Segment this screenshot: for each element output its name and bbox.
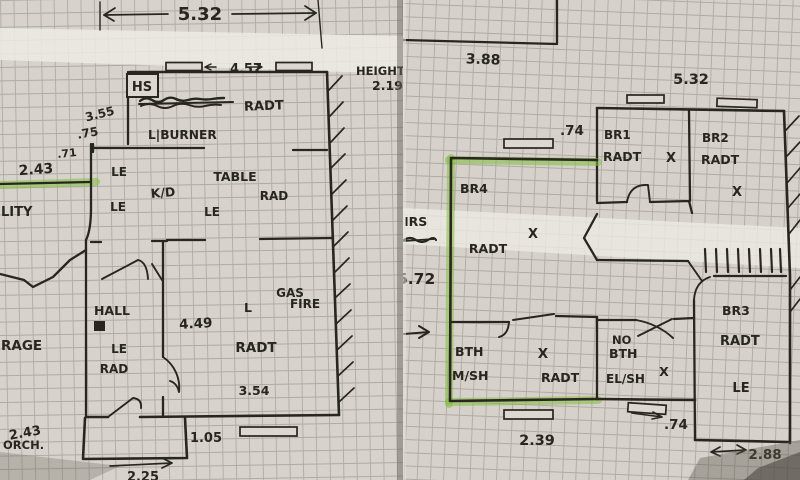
kd-label: K/D <box>150 184 176 201</box>
floor-plan-drawing: 5.32 4.57 HEIGHT 2.19 HS RADT 3.55 .75 L… <box>0 0 800 480</box>
hall-label: HALL <box>94 303 130 318</box>
br4-label: BR4 <box>460 181 488 196</box>
dim-0-74-bottom-label: .74 <box>664 417 688 433</box>
kitchen-radiator-label: RADT <box>244 98 284 114</box>
br3-label: BR3 <box>722 303 750 318</box>
br1-radiator-label: RADT <box>603 149 642 164</box>
le-left-label: LE <box>110 200 126 214</box>
table-label: TABLE <box>213 169 256 184</box>
bath-x-mark: X <box>538 346 549 362</box>
dim-2-25-label: 2.25 <box>127 470 159 480</box>
no-bath-x-mark: X <box>659 364 669 379</box>
bath-shower-label: M/SH <box>452 368 488 383</box>
br1-label: BR1 <box>604 128 631 142</box>
dim-5-32-label: 5.32 <box>178 4 222 25</box>
window-symbol <box>627 95 664 103</box>
stairs-label: IRS <box>404 214 427 229</box>
window-symbol <box>240 427 297 436</box>
hall-symbol-square <box>94 321 105 331</box>
window-symbol <box>717 98 757 107</box>
left-photo-panel: 5.32 4.57 HEIGHT 2.19 HS RADT 3.55 .75 L… <box>0 0 405 480</box>
br4-x-mark: X <box>528 227 538 242</box>
hs-label: HS <box>132 80 152 95</box>
dim-3-54-label: 3.54 <box>239 383 270 398</box>
floor-plan-photo-composite: 5.32 4.57 HEIGHT 2.19 HS RADT 3.55 .75 L… <box>0 0 800 480</box>
table-radiator-label: RAD <box>260 189 289 203</box>
photo-seam <box>397 0 406 480</box>
fire-label: FIRE <box>290 297 320 311</box>
no-bath-line1: NO <box>612 333 632 347</box>
hall-le-label: LE <box>111 342 127 356</box>
dim-4-49-label: 4.49 <box>179 315 213 333</box>
br2-label: BR2 <box>702 131 729 145</box>
hall-radiator-label: RAD <box>100 362 129 376</box>
dim-3-88-label: 3.88 <box>466 51 501 68</box>
dim-5-32-right-label: 5.32 <box>673 72 709 88</box>
utility-label: LITY <box>1 205 33 220</box>
dim-2-39-label: 2.39 <box>519 433 555 449</box>
br2-x-mark: X <box>732 185 742 200</box>
el-shower-label: EL/SH <box>606 372 645 386</box>
br2-radiator-label: RADT <box>701 152 740 167</box>
dim-2-43-label: 2.43 <box>18 161 54 179</box>
br3-radiator-label: RADT <box>720 334 760 349</box>
br3-le-label: LE <box>732 381 749 396</box>
no-bath-line2: BTH <box>609 346 638 361</box>
br4-radiator-label: RADT <box>469 241 508 256</box>
dim-0-71-label: .71 <box>57 146 78 161</box>
bath-radiator-label: RADT <box>541 370 580 385</box>
burner-label: L|BURNER <box>148 128 217 142</box>
window-symbol <box>504 410 553 419</box>
dim-4-57-label: 4.57 <box>230 62 262 77</box>
garage-label: RAGE <box>1 338 42 354</box>
le-top-label: LE <box>111 165 127 179</box>
porch-label: ORCH. <box>3 438 44 452</box>
dim-0-74-top-label: .74 <box>560 123 584 139</box>
window-symbol <box>166 63 202 71</box>
bath-label: BTH <box>455 344 484 359</box>
le-center-label: LE <box>204 205 220 219</box>
window-symbol <box>504 139 553 148</box>
lounge-radiator-label: RADT <box>235 340 277 356</box>
lounge-l-label: L <box>244 300 252 315</box>
window-symbol <box>276 63 312 71</box>
right-photo-panel: 3.88 5.32 .74 BR1 RADT X BR2 RADT X BR4 … <box>397 0 800 480</box>
br1-x-mark: X <box>666 151 676 166</box>
dim-1-05-label: 1.05 <box>190 431 222 446</box>
